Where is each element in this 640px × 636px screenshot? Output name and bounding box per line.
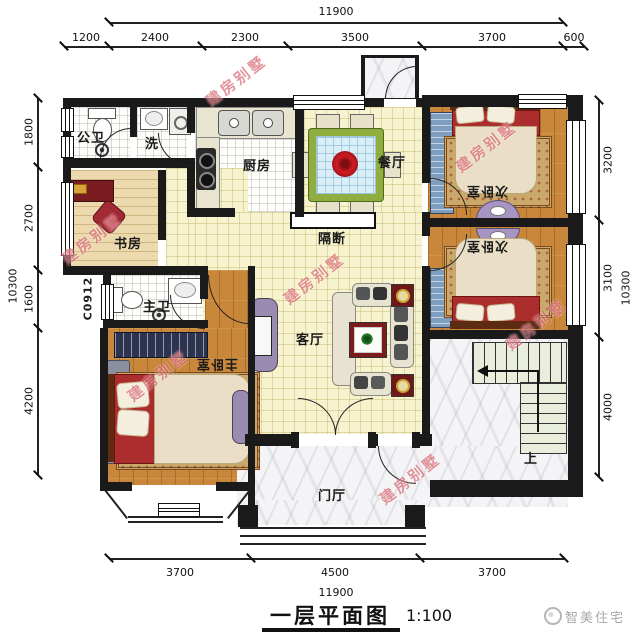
laundry-sink-basin bbox=[145, 111, 163, 126]
pillow bbox=[455, 303, 484, 322]
door-gap-foyer-single bbox=[378, 434, 415, 446]
wall-kitchen-right bbox=[295, 107, 304, 217]
dim-line-left bbox=[37, 98, 39, 475]
room-label-bedroom-b: 次卧室 bbox=[466, 238, 508, 257]
pillow bbox=[116, 409, 150, 437]
porch-outline-left bbox=[361, 55, 365, 100]
dim-bottom-seg: 4500 bbox=[321, 566, 349, 579]
door-gap-back-porch bbox=[384, 99, 416, 107]
nightstand-bowl bbox=[490, 206, 506, 216]
entry-step-line bbox=[240, 535, 426, 537]
dim-right-seg: 3200 bbox=[602, 146, 615, 174]
room-label-foyer: 门厅 bbox=[318, 485, 346, 504]
stair-direction-line-vertical bbox=[537, 372, 539, 432]
dim-line-top-total bbox=[109, 22, 563, 24]
lamp-icon bbox=[396, 289, 410, 303]
dim-top-total: 11900 bbox=[319, 5, 354, 18]
foyer-column bbox=[238, 505, 258, 527]
room-label-master-bedroom: 主卧室 bbox=[196, 356, 238, 375]
drawing-scale: 1:100 bbox=[406, 606, 452, 625]
table-flower-icon bbox=[332, 151, 358, 177]
brand-logo-icon bbox=[544, 607, 562, 625]
stove-burner-icon bbox=[199, 153, 215, 169]
window bbox=[61, 108, 74, 132]
wall-top-left-block bbox=[63, 98, 425, 107]
wall-study-right bbox=[158, 170, 166, 240]
room-label-dining: 餐厅 bbox=[378, 152, 406, 171]
bay-window-glyph bbox=[158, 503, 200, 517]
wall-bottom-right bbox=[430, 480, 570, 497]
plant-icon bbox=[360, 332, 374, 346]
wall-laundry-kitchen-lower bbox=[187, 165, 195, 212]
wall-bedrooms-left-lower bbox=[422, 266, 430, 446]
dim-bottom-total: 11900 bbox=[319, 586, 354, 599]
room-label-master-bath: 主卫 bbox=[143, 296, 171, 315]
dim-line-right bbox=[598, 100, 600, 477]
window-bedroom-a-east bbox=[566, 120, 586, 214]
foyer-column bbox=[405, 505, 425, 527]
stove-burner-icon bbox=[199, 172, 215, 188]
room-label-bedroom-a: 次卧室 bbox=[466, 183, 508, 202]
dim-bottom-seg: 3700 bbox=[478, 566, 506, 579]
room-label-kitchen: 厨房 bbox=[243, 155, 271, 174]
master-wardrobe bbox=[114, 332, 208, 358]
lamp-icon bbox=[396, 379, 410, 393]
dim-top-seg: 3500 bbox=[341, 31, 369, 44]
window-code-label: C0912 bbox=[81, 277, 94, 321]
wall-foyer-west bbox=[248, 446, 255, 507]
wall-corridor-south bbox=[63, 266, 208, 275]
window-c0912 bbox=[101, 284, 114, 320]
brand-name: 智美住宅 bbox=[565, 607, 625, 626]
window-bedroom-b-east bbox=[566, 244, 586, 326]
dim-right-total: 10300 bbox=[620, 271, 633, 306]
stairs-up-label: 上 bbox=[524, 448, 538, 467]
page-title: 一层平面图 bbox=[270, 600, 390, 630]
sofa-cushion bbox=[394, 344, 408, 360]
dim-bottom-seg: 3700 bbox=[166, 566, 194, 579]
bay-window-slant-left bbox=[104, 489, 128, 519]
dim-right-seg: 3100 bbox=[602, 264, 615, 292]
wall-living-west bbox=[248, 266, 255, 446]
stair-lower-run bbox=[520, 382, 567, 454]
sofa-cushion bbox=[356, 287, 370, 300]
entry-step-line bbox=[240, 527, 426, 529]
entry-step-line bbox=[240, 543, 426, 545]
sofa-cushion bbox=[394, 325, 408, 341]
dim-top-seg: 2400 bbox=[141, 31, 169, 44]
dim-top-seg: 3700 bbox=[478, 31, 506, 44]
window-bedroom-a-north bbox=[518, 94, 567, 109]
washing-machine-door bbox=[174, 116, 188, 130]
tv-screen bbox=[254, 316, 272, 356]
dim-right-seg: 4000 bbox=[602, 393, 615, 421]
dim-left-seg: 1600 bbox=[23, 285, 36, 313]
bay-window-front-line bbox=[128, 521, 223, 523]
dim-left-seg: 4200 bbox=[23, 387, 36, 415]
dim-left-seg: 2700 bbox=[23, 204, 36, 232]
sofa-cushion bbox=[354, 376, 368, 389]
wall-bedrooms-left-upper bbox=[422, 95, 430, 183]
kitchen-faucet-right bbox=[263, 118, 273, 128]
kitchen-faucet-left bbox=[229, 118, 239, 128]
study-books bbox=[73, 184, 87, 194]
door-gap-front-double bbox=[298, 434, 372, 446]
wall-laundry-kitchen-upper bbox=[187, 107, 195, 133]
title-underline bbox=[262, 628, 400, 632]
stair-arrow-icon bbox=[477, 365, 488, 377]
dim-top-seg: 600 bbox=[564, 31, 585, 44]
floor-plan: 公卫 洗 厨房 餐厅 次卧室 次卧室 书房 隔断 主卫 客厅 主卧室 门厅 上 … bbox=[0, 0, 640, 636]
wall-kitchen-south bbox=[187, 208, 235, 217]
dim-left-total: 10300 bbox=[7, 269, 20, 304]
wall-bedrooms-divider bbox=[430, 218, 583, 227]
wall-master-left bbox=[100, 328, 108, 490]
room-label-public-bath: 公卫 bbox=[77, 127, 105, 146]
window bbox=[61, 136, 74, 158]
room-label-partition: 隔断 bbox=[318, 228, 346, 247]
pillow bbox=[455, 105, 485, 125]
stair-direction-line bbox=[487, 370, 539, 372]
room-label-living: 客厅 bbox=[296, 329, 324, 348]
dim-left-seg: 1800 bbox=[23, 118, 36, 146]
dim-top-seg: 1200 bbox=[72, 31, 100, 44]
window-dining-north bbox=[293, 95, 365, 110]
sofa-cushion bbox=[371, 376, 385, 389]
pillow bbox=[486, 303, 515, 322]
porch-outline-top bbox=[361, 55, 419, 58]
master-toilet-bowl bbox=[121, 291, 143, 309]
wall-bath-laundry-divider bbox=[130, 107, 137, 137]
wall-bedrooms-left-mid bbox=[422, 212, 430, 236]
sofa-cushion bbox=[373, 287, 387, 300]
dim-top-seg: 2300 bbox=[231, 31, 259, 44]
room-label-laundry: 洗 bbox=[145, 133, 159, 152]
room-label-study: 书房 bbox=[114, 233, 142, 252]
dim-line-bottom bbox=[109, 558, 564, 560]
dim-line-top-segments bbox=[64, 46, 584, 48]
sofa-cushion bbox=[394, 306, 408, 322]
